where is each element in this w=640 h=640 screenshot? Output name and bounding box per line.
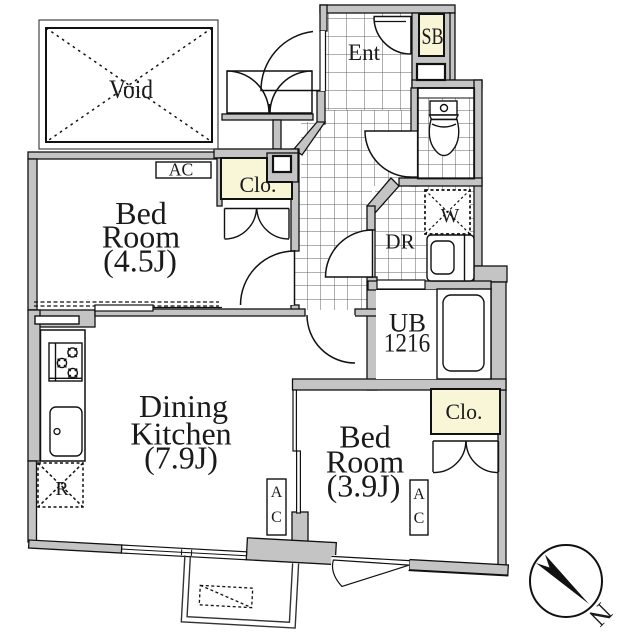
svg-text:1216: 1216 bbox=[384, 329, 431, 358]
svg-text:Ent: Ent bbox=[348, 40, 381, 65]
svg-text:(7.9J): (7.9J) bbox=[144, 440, 218, 476]
svg-text:A: A bbox=[271, 484, 283, 501]
svg-text:SB: SB bbox=[422, 24, 444, 49]
svg-text:Clo.: Clo. bbox=[446, 399, 483, 424]
svg-text:A: A bbox=[413, 486, 425, 503]
svg-text:W: W bbox=[441, 205, 460, 227]
svg-text:C: C bbox=[414, 510, 425, 527]
svg-text:C: C bbox=[271, 509, 282, 526]
svg-text:Void: Void bbox=[109, 75, 153, 104]
svg-text:(3.9J): (3.9J) bbox=[327, 468, 401, 504]
svg-text:AC: AC bbox=[169, 160, 194, 180]
svg-text:(4.5J): (4.5J) bbox=[103, 243, 177, 279]
svg-text:R: R bbox=[55, 478, 69, 500]
svg-text:DR: DR bbox=[385, 230, 414, 254]
svg-text:Clo.: Clo. bbox=[240, 172, 277, 197]
